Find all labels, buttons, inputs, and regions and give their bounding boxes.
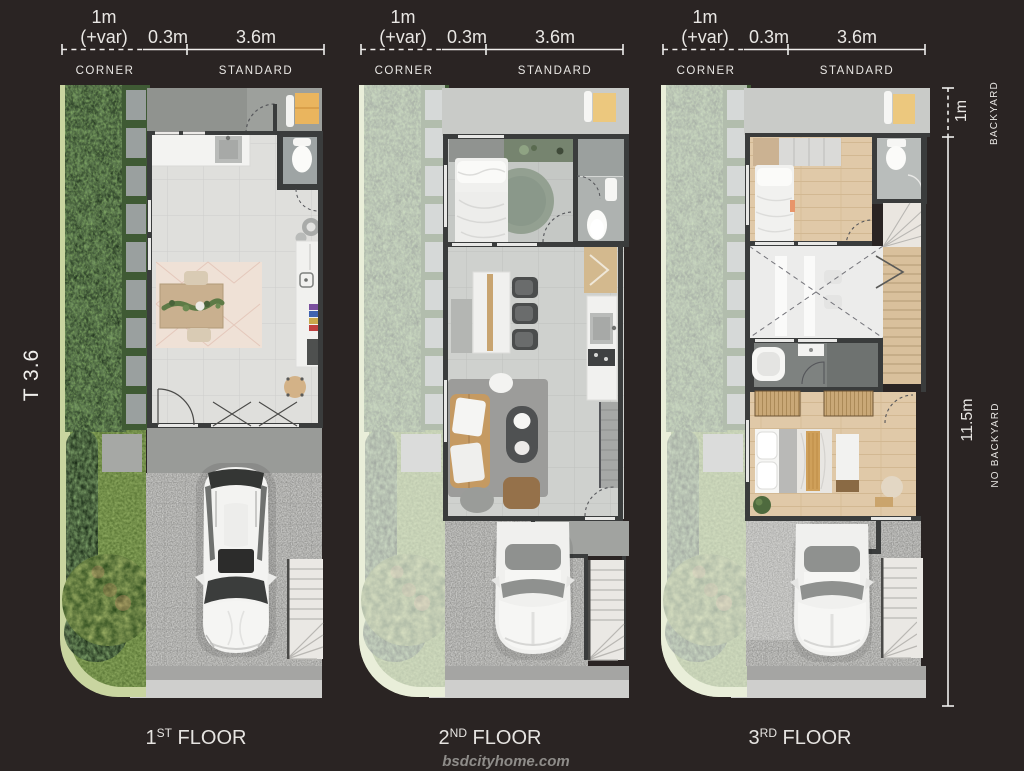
svg-text:NO BACKYARD: NO BACKYARD [990, 402, 1001, 487]
svg-text:T 3.6: T 3.6 [20, 349, 43, 401]
svg-text:11.5m: 11.5m [959, 398, 976, 441]
svg-text:1m: 1m [953, 100, 970, 122]
svg-text:bsdcityhome.com: bsdcityhome.com [442, 753, 570, 770]
svg-text:BACKYARD: BACKYARD [989, 81, 1000, 145]
